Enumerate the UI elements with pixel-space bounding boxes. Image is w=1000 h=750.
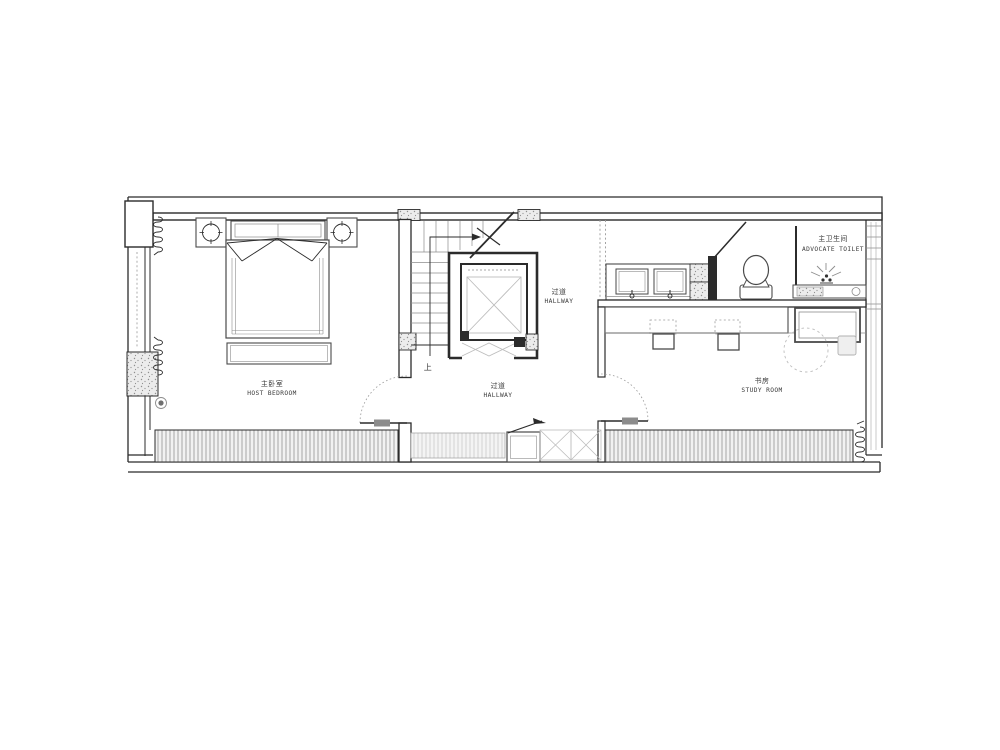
room-label-zh: 书房 — [755, 376, 770, 385]
cased-opening — [600, 220, 606, 298]
floor-drain-icon — [156, 398, 167, 409]
room-label-zh: 过道 — [552, 287, 567, 296]
door-threshold — [622, 418, 638, 425]
glazing-strip — [411, 433, 505, 458]
study-desk — [795, 308, 860, 355]
room-label-zh: 主卫生间 — [818, 234, 848, 243]
sink-left — [616, 269, 648, 298]
toilet-door-leaf — [713, 222, 746, 259]
room-label-zh: 过道 — [491, 381, 506, 390]
study-west-wall — [598, 307, 605, 377]
room-label-en: HOST BEDROOM — [247, 390, 297, 397]
elevator-cross — [467, 277, 521, 333]
curtain-coil-icon — [154, 217, 163, 255]
study-door — [601, 374, 648, 425]
room-label-en: HALLWAY — [545, 298, 574, 305]
nightstand-right — [327, 218, 357, 247]
elevator — [449, 253, 538, 358]
desk-chair — [838, 336, 856, 355]
door-threshold — [374, 420, 390, 427]
shower-bench — [793, 285, 866, 298]
hallway: 过道 HALLWAY 过道 HALLWAY — [484, 220, 606, 399]
room-label-en: STUDY ROOM — [741, 387, 782, 394]
master-bedroom: 主卧室 HOST BEDROOM — [154, 217, 417, 462]
room-label-en: ADVOCATE TOILET — [802, 246, 864, 253]
cabinet — [690, 282, 710, 300]
bedroom-door — [360, 376, 407, 427]
mattress — [226, 240, 329, 338]
room-label-zh: 主卧室 — [261, 379, 283, 388]
vanity-area — [606, 264, 712, 300]
toilet-wall — [708, 256, 717, 300]
master-toilet-room: 主卫生间 ADVOCATE TOILET — [708, 222, 866, 300]
study-counter — [605, 307, 788, 333]
louver-strip — [155, 430, 398, 462]
void-panel — [540, 430, 601, 460]
floor-plan-drawing: 主卧室 HOST BEDROOM 上 过道 HALLWAY 过道 HALLWAY — [0, 0, 1000, 750]
nightstand-left — [196, 218, 226, 247]
curtain-coil-icon — [856, 421, 865, 462]
floor-plan-page: 主卧室 HOST BEDROOM 上 过道 HALLWAY 过道 HALLWAY — [0, 0, 1000, 750]
sink-right — [654, 269, 686, 298]
louver-strip — [605, 430, 853, 462]
shower-head-icon — [811, 263, 841, 283]
bedroom-wall-east — [399, 220, 416, 463]
double-bed — [226, 221, 331, 364]
room-label-en: HALLWAY — [484, 392, 513, 399]
south-window-strip — [155, 418, 865, 462]
door-swing-arc — [360, 376, 407, 423]
door-swing-arc — [601, 374, 648, 421]
elevator-door-symbol — [462, 343, 516, 356]
toilet-icon — [740, 256, 772, 300]
cabinet — [690, 264, 710, 282]
stair-up-label: 上 — [424, 363, 432, 372]
study-north-wall — [598, 300, 866, 307]
bed-bench — [227, 343, 331, 364]
